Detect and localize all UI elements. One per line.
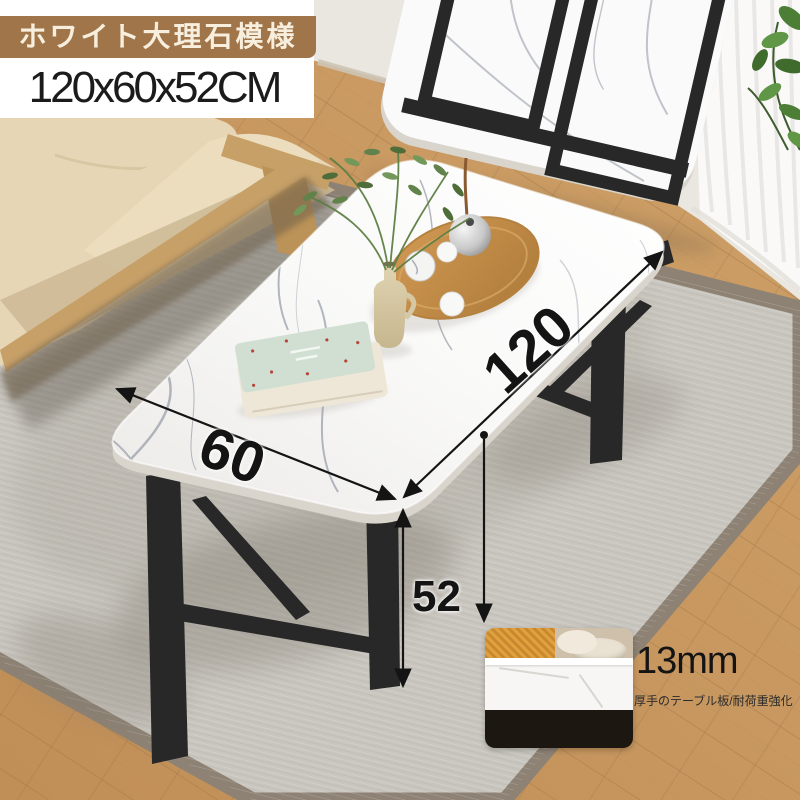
color-badge: ホワイト大理石模様 <box>0 16 316 58</box>
tea-cup-2 <box>440 292 464 316</box>
product-image: ホワイト大理石模様 120x60x52CM 120 60 52 13mm 厚手の… <box>0 0 800 800</box>
thickness-inset-photo <box>485 628 633 748</box>
inset-cup <box>557 630 597 654</box>
thickness-value: 13mm <box>636 640 738 683</box>
inset-marble-vein-2 <box>579 674 604 708</box>
tea-jar <box>405 251 435 281</box>
dimension-label-height: 52 <box>412 572 461 622</box>
tabletop-edge-closeup <box>485 658 633 710</box>
inset-background <box>485 628 633 662</box>
inset-marble-vein <box>499 667 569 679</box>
front-right-leg <box>366 496 400 690</box>
tabletop-surface-line <box>485 658 633 665</box>
tea-cup <box>437 242 457 262</box>
basket-texture <box>485 628 555 662</box>
thickness-caption: 厚手のテーブル板/耐荷重強化 <box>634 692 800 709</box>
size-label: 120x60x52CM <box>0 58 308 118</box>
callout-dot <box>480 431 488 439</box>
inset-shadow-area <box>485 710 633 748</box>
